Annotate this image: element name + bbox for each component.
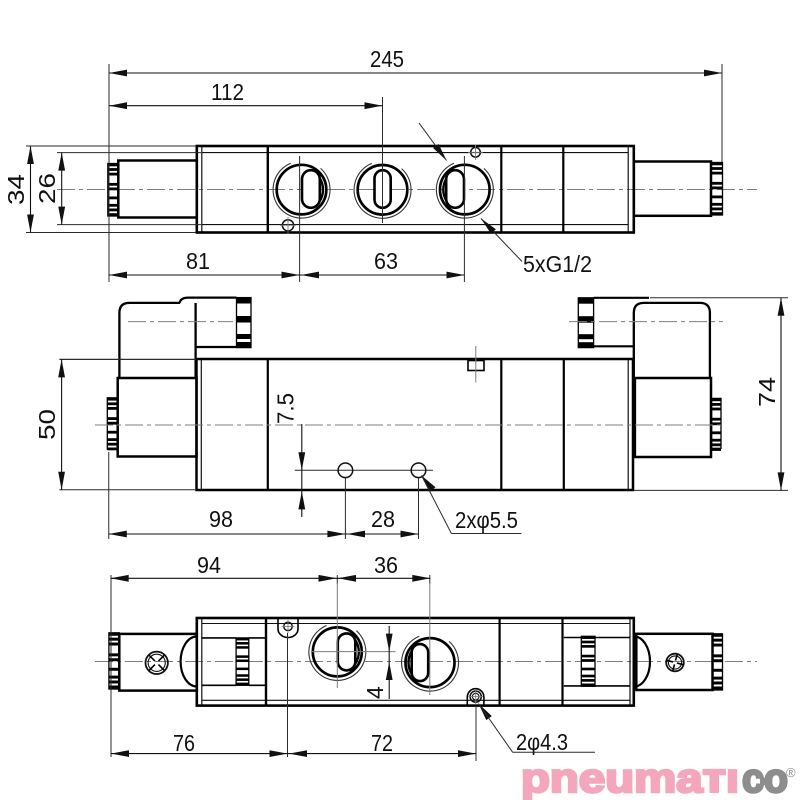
svg-text:76: 76: [173, 730, 195, 756]
svg-text:72: 72: [371, 730, 393, 756]
svg-text:pneumaтı: pneumaтı: [521, 755, 739, 800]
svg-text:63: 63: [374, 248, 398, 274]
svg-text:®: ®: [786, 765, 796, 780]
svg-text:28: 28: [371, 506, 395, 532]
svg-text:98: 98: [209, 506, 233, 532]
svg-text:81: 81: [186, 248, 210, 274]
svg-text:4: 4: [362, 686, 388, 699]
svg-text:7.5: 7.5: [273, 393, 299, 424]
svg-text:74: 74: [754, 377, 780, 407]
svg-text:36: 36: [374, 552, 398, 578]
svg-text:34: 34: [3, 174, 29, 205]
svg-text:112: 112: [211, 79, 244, 105]
svg-text:245: 245: [370, 46, 404, 72]
svg-text:26: 26: [34, 173, 60, 204]
svg-text:co: co: [742, 755, 788, 800]
svg-text:2xφ5.5: 2xφ5.5: [455, 507, 518, 533]
svg-text:2φ4.3: 2φ4.3: [516, 729, 568, 755]
svg-text:94: 94: [197, 552, 221, 578]
svg-text:50: 50: [34, 409, 60, 440]
svg-text:5xG1/2: 5xG1/2: [523, 251, 592, 277]
